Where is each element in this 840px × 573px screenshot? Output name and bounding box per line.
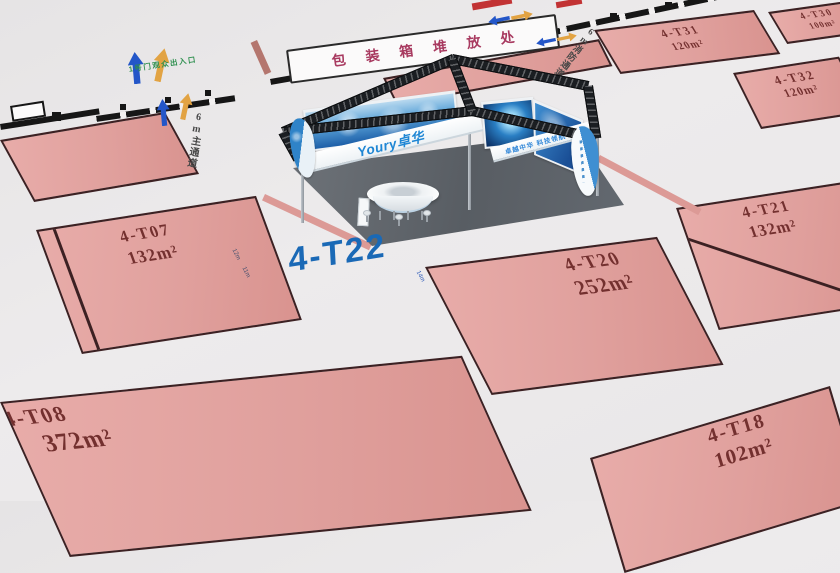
stool — [423, 210, 431, 222]
booth-unlabeled-left — [0, 112, 199, 202]
stool — [395, 214, 403, 226]
reception-desk — [365, 180, 443, 228]
wall-post-icon — [165, 97, 171, 103]
booth-4-T32: 4-T32 120m² — [733, 57, 840, 129]
main-aisle-label: 6m主通道 — [182, 111, 207, 170]
booth-4-T20: 4-T20 252m² — [425, 237, 724, 395]
wall-post-icon — [52, 112, 61, 121]
booth-4-T07: 4-T07 132m² — [36, 196, 302, 354]
wall-post-icon — [610, 13, 617, 20]
exhibition-booth-3d: Youry卓华 卓越中华 科技领航 4-T22 — [270, 48, 640, 258]
wall-post-icon — [665, 2, 672, 9]
booth-4-T08: 4-T08 372m² — [0, 356, 532, 557]
desk-leg — [407, 211, 409, 220]
wall-post-icon — [205, 90, 211, 96]
dimension-label: 14m — [415, 270, 426, 283]
booth-4-T21: 4-T21 132m² — [676, 182, 840, 330]
booth-divider — [688, 238, 840, 314]
booth-4-T18: 4-T18 102m² — [590, 386, 840, 573]
desk-leg — [379, 211, 381, 220]
red-endwall — [251, 40, 272, 75]
stool — [363, 210, 371, 222]
red-mark — [472, 0, 513, 10]
booth-4-T30: 4-T30 100m² — [768, 0, 840, 44]
red-mark — [556, 0, 583, 8]
truss-beam — [451, 54, 589, 91]
wall-post-icon — [120, 104, 126, 110]
